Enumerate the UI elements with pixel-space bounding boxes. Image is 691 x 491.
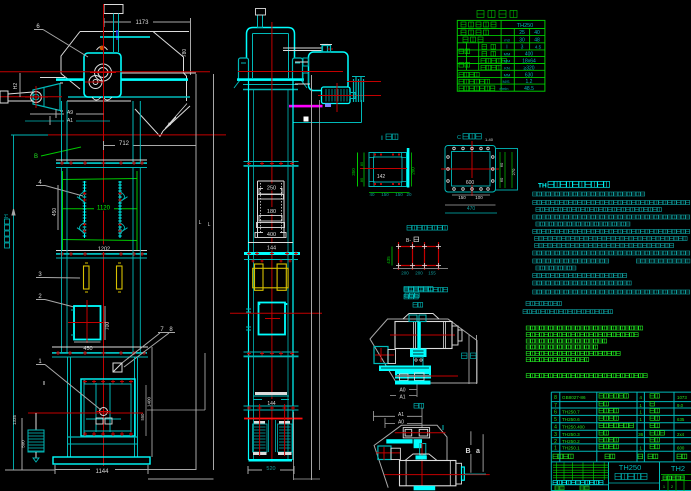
svg-text:TH250.7: TH250.7: [562, 410, 580, 415]
svg-text:1: 1: [639, 403, 642, 408]
svg-text:85: 85: [359, 161, 364, 166]
svg-text:1173: 1173: [136, 20, 150, 26]
svg-text:1-40: 1-40: [485, 137, 494, 142]
svg-text:200: 200: [401, 271, 409, 276]
svg-text:TH250.1: TH250.1: [562, 446, 580, 451]
svg-text:25: 25: [519, 30, 525, 36]
svg-text:1: 1: [639, 446, 642, 451]
svg-text:II: II: [43, 381, 46, 387]
svg-text:4: 4: [639, 395, 642, 400]
svg-text:400: 400: [525, 52, 534, 58]
svg-text:A1: A1: [67, 118, 73, 124]
svg-text:H2: H2: [13, 83, 19, 90]
svg-text:20: 20: [406, 192, 412, 197]
svg-text:3: 3: [521, 45, 524, 51]
svg-text:C: C: [457, 135, 461, 141]
svg-text:1073: 1073: [677, 395, 687, 400]
svg-text:8: 8: [554, 395, 557, 401]
svg-text:60: 60: [499, 162, 504, 167]
svg-text:m3: m3: [504, 38, 510, 43]
svg-text:155: 155: [428, 271, 436, 276]
svg-text:7: 7: [554, 403, 557, 409]
svg-text:100: 100: [475, 195, 483, 200]
svg-text:1202: 1202: [98, 247, 110, 253]
svg-text:1: 1: [554, 446, 557, 452]
svg-text:712: 712: [119, 141, 130, 147]
svg-text:TH250: TH250: [517, 23, 534, 29]
svg-text:6: 6: [554, 410, 557, 416]
svg-text:MM: MM: [504, 52, 511, 57]
svg-text:GB8027-86: GB8027-86: [562, 395, 586, 400]
svg-text:600: 600: [466, 180, 475, 186]
svg-text:48.5: 48.5: [524, 86, 534, 92]
svg-text:150: 150: [395, 192, 403, 197]
svg-text:TH250.2: TH250.2: [562, 439, 580, 444]
svg-text:40: 40: [534, 30, 540, 36]
svg-text:H: H: [4, 214, 10, 218]
svg-text:MM: MM: [504, 72, 511, 77]
svg-text:9.0: 9.0: [677, 403, 684, 408]
svg-text:350: 350: [351, 168, 356, 176]
svg-text:600: 600: [677, 446, 685, 451]
svg-text:150: 150: [458, 195, 466, 200]
svg-text:TH2: TH2: [671, 464, 685, 473]
svg-text:60: 60: [499, 177, 504, 182]
svg-text:4: 4: [554, 425, 557, 431]
svg-text:85: 85: [359, 177, 364, 182]
svg-text:450: 450: [52, 208, 58, 217]
svg-text:A1: A1: [399, 395, 405, 401]
svg-text:270: 270: [511, 168, 516, 175]
svg-text:550: 550: [140, 413, 145, 421]
svg-text:I: I: [506, 45, 507, 51]
svg-text:520: 520: [266, 466, 275, 472]
svg-text:TH250.3: TH250.3: [562, 432, 580, 437]
svg-text:200: 200: [415, 271, 423, 276]
svg-text:48: 48: [534, 38, 540, 44]
svg-text:500: 500: [21, 440, 26, 448]
svg-text:30: 30: [519, 38, 525, 44]
svg-text:≥320: ≥320: [523, 65, 534, 71]
svg-text:3: 3: [554, 432, 557, 438]
svg-text:a: a: [476, 448, 480, 455]
svg-text:1: 1: [639, 417, 642, 422]
svg-text:4.5: 4.5: [535, 45, 542, 50]
svg-text:B-: B-: [406, 238, 411, 244]
svg-text:700: 700: [105, 322, 111, 331]
svg-text:TH250.6: TH250.6: [562, 417, 580, 422]
svg-text:B: B: [465, 448, 470, 455]
svg-text:150: 150: [381, 192, 389, 197]
svg-text:2: 2: [554, 439, 557, 445]
svg-text:M/S: M/S: [502, 79, 509, 84]
svg-text:200: 200: [411, 167, 416, 175]
svg-text:KN: KN: [504, 65, 510, 70]
svg-text:TH250.400: TH250.400: [562, 425, 585, 430]
svg-text:2x4: 2x4: [677, 432, 685, 437]
svg-text:630: 630: [525, 72, 534, 78]
svg-text:A0: A0: [398, 420, 404, 426]
svg-text:TH250: TH250: [619, 463, 642, 472]
svg-text:250: 250: [267, 186, 276, 192]
svg-text:L: L: [208, 222, 211, 228]
svg-text:MM: MM: [504, 59, 511, 64]
svg-text:1144: 1144: [96, 469, 110, 475]
svg-text:B: B: [34, 154, 38, 160]
svg-text:A9: A9: [67, 110, 73, 116]
svg-text:1400: 1400: [147, 396, 152, 407]
svg-text:1120: 1120: [97, 206, 111, 212]
svg-text:400: 400: [267, 232, 276, 238]
svg-text:L: L: [199, 220, 202, 226]
svg-text:635: 635: [677, 417, 685, 422]
svg-text:18x64: 18x64: [522, 59, 536, 65]
svg-text:1335: 1335: [12, 414, 17, 425]
svg-text:36: 36: [638, 432, 644, 437]
svg-text:40: 40: [369, 192, 375, 197]
svg-text:A1: A1: [398, 412, 404, 418]
svg-text:r/min: r/min: [500, 86, 509, 91]
svg-text:1: 1: [639, 410, 642, 415]
svg-text:TH: TH: [538, 183, 547, 190]
svg-text:1.2: 1.2: [526, 79, 533, 85]
svg-text:142: 142: [377, 174, 386, 180]
svg-text:435: 435: [386, 256, 391, 264]
svg-text:470: 470: [467, 206, 476, 212]
svg-text:180: 180: [267, 209, 276, 215]
svg-text:5: 5: [554, 417, 557, 423]
svg-text:144: 144: [267, 246, 276, 252]
